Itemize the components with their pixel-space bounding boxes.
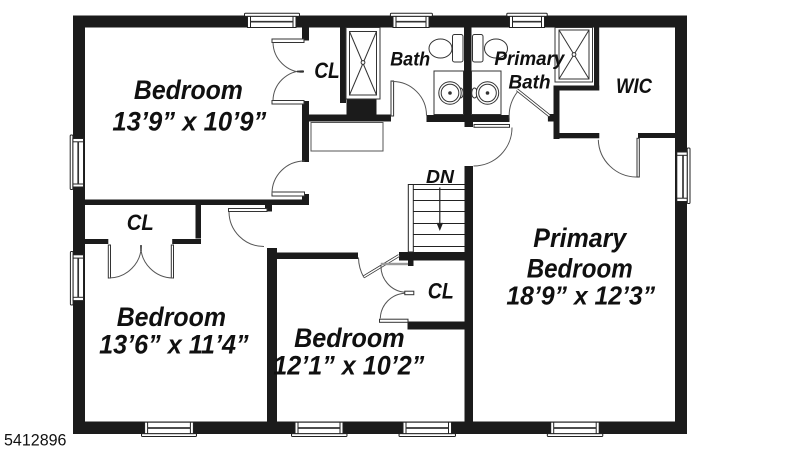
svg-text:Bedroom: Bedroom <box>134 75 243 105</box>
svg-text:Bedroom: Bedroom <box>117 302 226 332</box>
svg-text:18’9” x 12’3”: 18’9” x 12’3” <box>506 281 655 311</box>
svg-text:Primary: Primary <box>494 48 565 70</box>
svg-text:13’6” x 11’4”: 13’6” x 11’4” <box>99 330 249 360</box>
svg-text:Bath: Bath <box>509 72 551 94</box>
svg-text:WIC: WIC <box>616 75 653 98</box>
svg-text:Bedroom: Bedroom <box>294 323 405 353</box>
svg-text:DN: DN <box>426 166 455 187</box>
svg-text:13’9” x 10’9”: 13’9” x 10’9” <box>112 107 266 137</box>
svg-text:CL: CL <box>127 210 154 235</box>
svg-text:Bath: Bath <box>390 49 430 71</box>
svg-text:CL: CL <box>428 278 454 303</box>
svg-text:CL: CL <box>314 58 340 83</box>
svg-text:5412896: 5412896 <box>4 432 67 450</box>
svg-text:12’1” x 10’2”: 12’1” x 10’2” <box>273 351 424 381</box>
svg-text:Bedroom: Bedroom <box>527 253 633 283</box>
svg-text:Primary: Primary <box>533 223 628 253</box>
